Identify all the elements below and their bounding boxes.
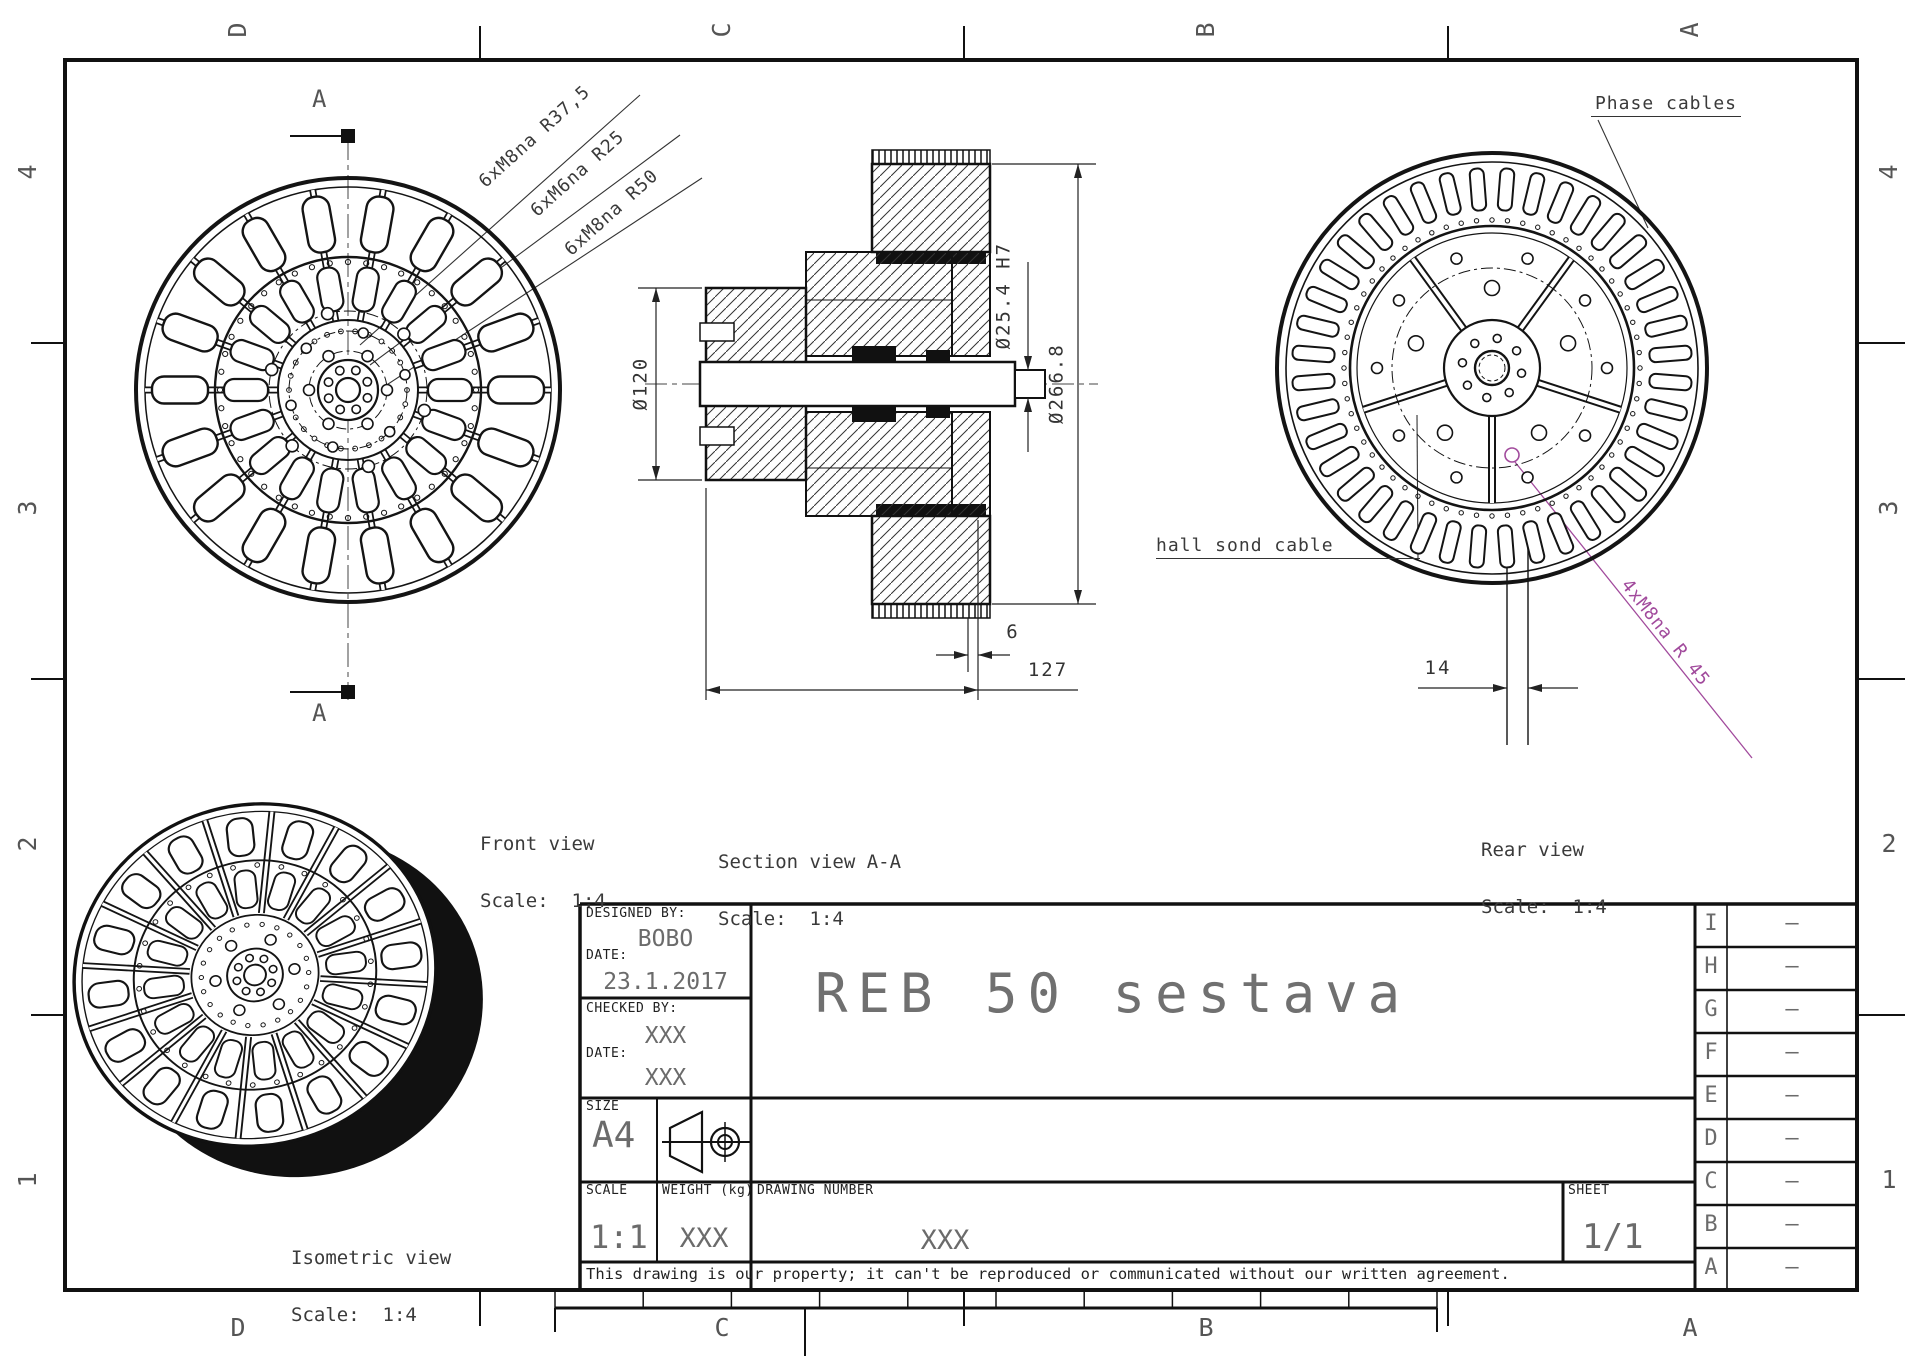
revision-value: – <box>1727 1127 1857 1152</box>
zone-letter-bottom-a: A <box>1673 1314 1707 1342</box>
disclaimer: This drawing is our property; it can't b… <box>586 1266 1510 1283</box>
revision-letter: H <box>1695 955 1727 980</box>
zone-letter-bottom-b: B <box>1189 1314 1223 1342</box>
section-view-drawing <box>645 150 1098 618</box>
sheet-label: SHEET <box>1568 1184 1610 1199</box>
isometric-view-name: Isometric view <box>291 1248 451 1269</box>
revision-value: – <box>1727 1041 1857 1066</box>
revision-letter: E <box>1695 1084 1727 1109</box>
zone-letter-top-b: B <box>1192 13 1220 47</box>
check-date-label: DATE: <box>586 1047 628 1062</box>
sheet-value: 1/1 <box>1582 1218 1643 1256</box>
dim-flange-diameter: Ø120 <box>630 339 651 429</box>
zone-number-left-1: 1 <box>14 1163 42 1197</box>
zone-letter-bottom-c: C <box>705 1314 739 1342</box>
isometric-view-label: Isometric view Scale: 1:4 <box>291 1212 451 1344</box>
zone-letter-top-d: D <box>224 13 252 47</box>
dim-shaft-width: 14 <box>1408 658 1468 679</box>
drawing-title: REB 50 sestava <box>815 964 1410 1024</box>
revision-letter: C <box>1695 1170 1727 1195</box>
zone-number-right-4: 4 <box>1875 155 1903 189</box>
hall-cable-label: hall sond cable <box>1156 536 1420 559</box>
zone-number-right-1: 1 <box>1872 1166 1906 1194</box>
dim-width: 127 <box>1008 660 1088 681</box>
isometric-view-drawing <box>29 757 527 1224</box>
size-value: A4 <box>592 1116 635 1156</box>
revision-letter: F <box>1695 1041 1727 1066</box>
revision-letter: G <box>1695 998 1727 1023</box>
section-marker-bottom: A <box>312 700 326 727</box>
zone-letter-bottom-d: D <box>221 1314 255 1342</box>
first-angle-projection-icon <box>662 1112 750 1172</box>
rear-view-scale: Scale: 1:4 <box>1481 897 1607 918</box>
zone-letter-top-a: A <box>1676 13 1704 47</box>
weight-label: WEIGHT (kg) <box>662 1184 754 1199</box>
drawing-number-value: XXX <box>900 1226 990 1256</box>
dim-offset: 6 <box>998 622 1028 643</box>
revision-letter: A <box>1695 1256 1727 1281</box>
revision-value: – <box>1727 1213 1857 1238</box>
size-label: SIZE <box>586 1100 619 1115</box>
rear-view-drawing <box>1277 153 1707 583</box>
isometric-view-scale: Scale: 1:4 <box>291 1305 451 1326</box>
print-scale-ruler <box>555 1290 1437 1356</box>
check-date-value: XXX <box>580 1066 751 1092</box>
rear-view-name: Rear view <box>1481 840 1607 861</box>
revision-value: – <box>1727 998 1857 1023</box>
revision-letter: D <box>1695 1127 1727 1152</box>
zone-number-right-2: 2 <box>1872 830 1906 858</box>
revision-value: – <box>1727 1256 1857 1281</box>
scale-label: SCALE <box>586 1184 628 1199</box>
designed-by-label: DESIGNED BY: <box>586 907 686 922</box>
revision-value: – <box>1727 955 1857 980</box>
checked-by-label: CHECKED BY: <box>586 1002 678 1017</box>
zone-letter-top-c: C <box>708 13 736 47</box>
revision-value: – <box>1727 1084 1857 1109</box>
drawing-number-label: DRAWING NUMBER <box>757 1184 874 1199</box>
revision-letter: B <box>1695 1213 1727 1238</box>
section-view-name: Section view A-A <box>718 852 901 873</box>
phase-cables-label: Phase cables <box>1591 94 1741 117</box>
revision-letter: I <box>1695 912 1727 937</box>
zone-number-left-3: 3 <box>14 491 42 525</box>
dim-outer-diameter: Ø266.8 <box>1046 334 1067 434</box>
revision-value: – <box>1727 912 1857 937</box>
rear-view-label: Rear view Scale: 1:4 <box>1481 804 1607 936</box>
design-date-value: 23.1.2017 <box>580 970 751 996</box>
dim-bore-diameter: Ø25.4 H7 <box>993 240 1014 352</box>
section-marker-top: A <box>312 86 326 113</box>
zone-number-left-2: 2 <box>14 827 42 861</box>
revision-value: – <box>1727 1170 1857 1195</box>
zone-number-right-3: 3 <box>1875 491 1903 525</box>
zone-number-left-4: 4 <box>14 155 42 189</box>
front-view-name: Front view <box>480 834 606 855</box>
drawing-canvas <box>0 0 1920 1358</box>
drawing-sheet: D C B A D C B A 4 3 2 1 4 3 2 1 A A 6xM8… <box>0 0 1920 1358</box>
weight-value: XXX <box>657 1224 751 1254</box>
scale-value: 1:1 <box>590 1220 648 1256</box>
design-date-label: DATE: <box>586 949 628 964</box>
